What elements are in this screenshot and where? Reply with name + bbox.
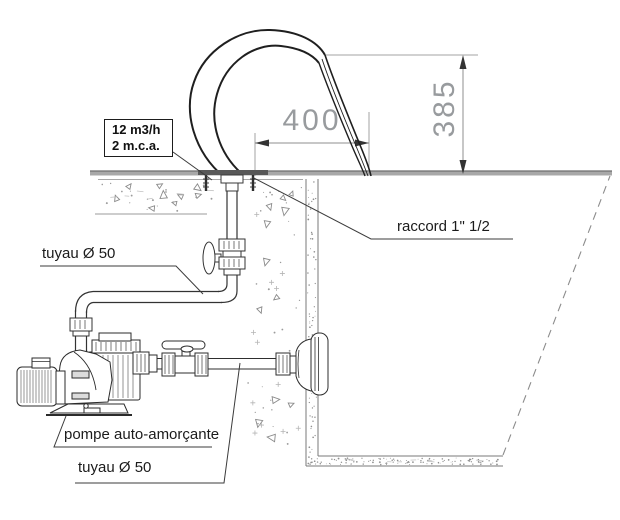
flow-rate-line1: 12 m3/h xyxy=(112,122,172,138)
riser-pipe xyxy=(227,191,237,239)
label-suction-pipe: tuyau Ø 50 xyxy=(78,460,151,477)
riser-valve xyxy=(203,239,245,275)
dimension-385-text: 385 xyxy=(428,78,462,137)
discharge-union xyxy=(70,318,92,336)
deck-surface xyxy=(90,171,612,214)
ball-valve xyxy=(162,341,208,376)
dimension-400-text: 400 xyxy=(270,104,354,138)
label-pump: pompe auto-amorçante xyxy=(64,427,219,444)
flow-rate-line2: 2 m.c.a. xyxy=(112,138,172,154)
pool-break-line xyxy=(503,176,610,455)
wall-inlet-fitting xyxy=(276,333,328,395)
dimension-385-wrap: 385 xyxy=(413,76,477,140)
pool-pump-installation-diagram: 12 m3/h 2 m.c.a. tuyau Ø 50 raccord 1" 1… xyxy=(0,0,620,520)
label-discharge-pipe: tuyau Ø 50 xyxy=(42,246,115,263)
label-connector: raccord 1" 1/2 xyxy=(397,219,490,236)
nozzle-plate xyxy=(198,170,268,191)
flow-rate-box: 12 m3/h 2 m.c.a. xyxy=(104,119,173,157)
